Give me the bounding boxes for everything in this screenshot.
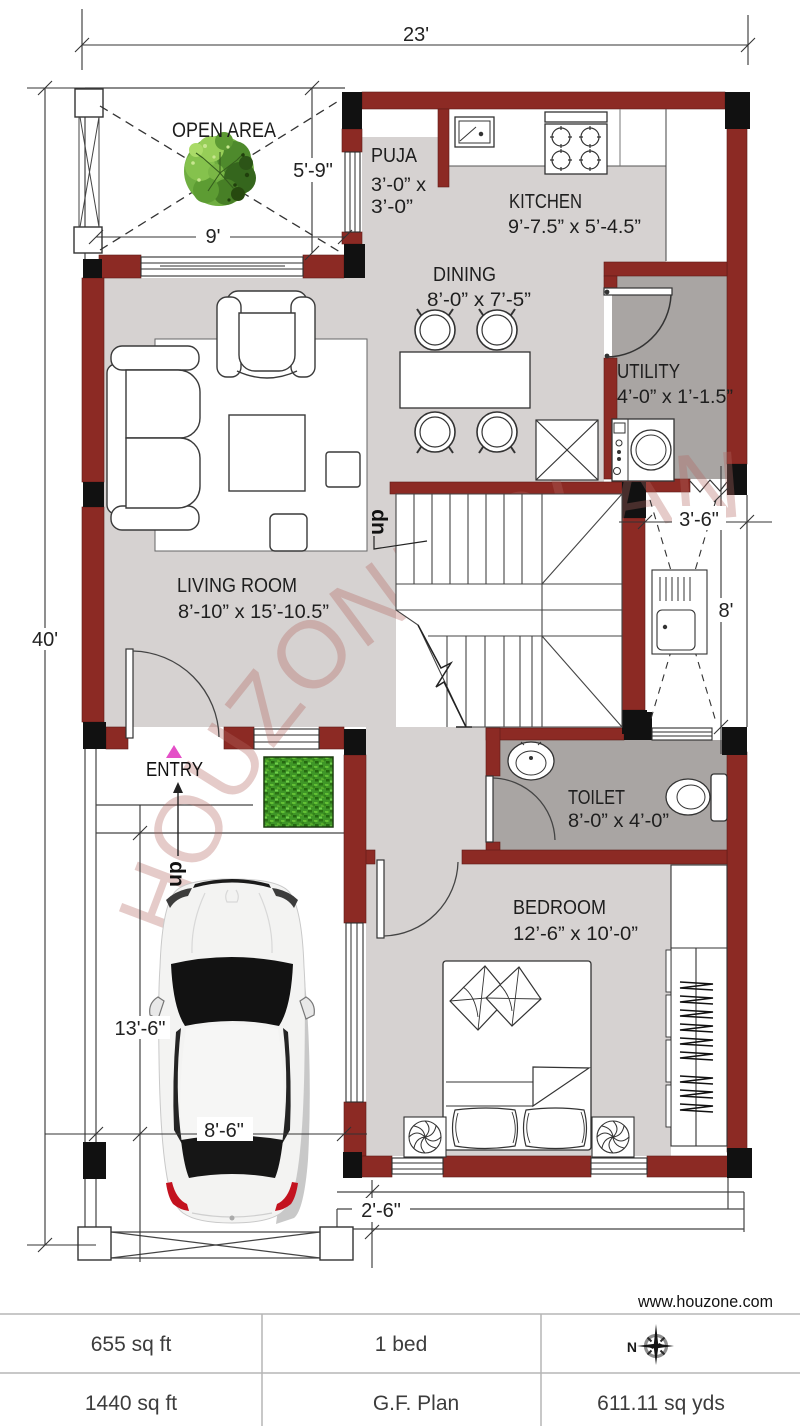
- svg-text:8': 8': [719, 600, 734, 622]
- svg-text:8’-0” x 4’-0”: 8’-0” x 4’-0”: [568, 811, 669, 832]
- svg-text:UTILITY: UTILITY: [617, 361, 680, 383]
- svg-text:3'-6": 3'-6": [679, 509, 719, 531]
- svg-text:DINING: DINING: [433, 264, 496, 286]
- svg-text:8'-6": 8'-6": [204, 1120, 244, 1142]
- svg-text:BEDROOM: BEDROOM: [513, 897, 606, 919]
- svg-text:up: up: [164, 861, 187, 887]
- svg-text:655 sq ft: 655 sq ft: [91, 1333, 172, 1356]
- svg-text:40': 40': [32, 629, 58, 651]
- svg-text:23': 23': [403, 24, 429, 46]
- svg-text:N: N: [627, 1339, 637, 1355]
- svg-text:4’-0” x 1’-1.5”: 4’-0” x 1’-1.5”: [617, 387, 733, 408]
- svg-text:9’-7.5” x 5’-4.5”: 9’-7.5” x 5’-4.5”: [508, 217, 641, 238]
- svg-text:3’-0”: 3’-0”: [371, 197, 413, 218]
- svg-text:2'-6": 2'-6": [361, 1200, 401, 1222]
- svg-text:OPEN AREA: OPEN AREA: [172, 119, 276, 142]
- svg-text:8’-10” x 15’-10.5”: 8’-10” x 15’-10.5”: [178, 602, 329, 623]
- svg-text:KITCHEN: KITCHEN: [509, 191, 582, 213]
- svg-text:3’-0” x: 3’-0” x: [371, 175, 427, 196]
- svg-text:LIVING ROOM: LIVING ROOM: [177, 575, 297, 597]
- svg-text:www.houzone.com: www.houzone.com: [637, 1292, 773, 1311]
- svg-text:G.F. Plan: G.F. Plan: [373, 1392, 459, 1415]
- svg-text:8’-0” x 7’-5”: 8’-0” x 7’-5”: [427, 290, 531, 311]
- svg-text:5'-9": 5'-9": [293, 160, 333, 182]
- svg-text:12’-6” x 10’-0”: 12’-6” x 10’-0”: [513, 924, 638, 945]
- svg-text:1440 sq ft: 1440 sq ft: [85, 1392, 177, 1415]
- svg-text:PUJA: PUJA: [371, 145, 418, 167]
- svg-text:up: up: [366, 509, 389, 535]
- svg-text:TOILET: TOILET: [568, 787, 625, 809]
- svg-text:13'-6": 13'-6": [115, 1018, 166, 1040]
- svg-text:9': 9': [206, 226, 221, 248]
- svg-text:1 bed: 1 bed: [375, 1333, 428, 1356]
- svg-text:ENTRY: ENTRY: [146, 759, 203, 781]
- svg-text:611.11 sq yds: 611.11 sq yds: [597, 1392, 725, 1415]
